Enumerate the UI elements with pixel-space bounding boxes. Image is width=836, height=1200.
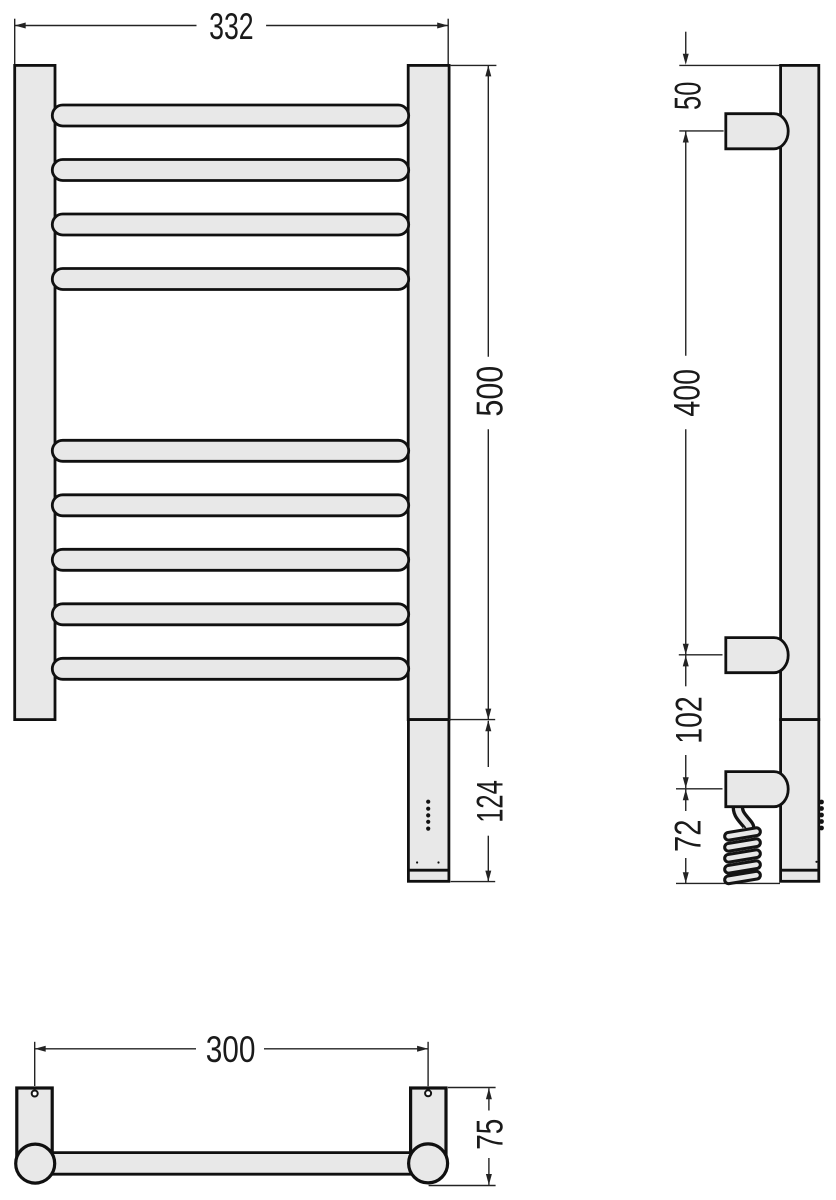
svg-text:332: 332 — [209, 6, 254, 47]
svg-text:50: 50 — [668, 82, 709, 110]
svg-text:400: 400 — [667, 369, 708, 417]
svg-text:300: 300 — [206, 1029, 256, 1070]
svg-text:72: 72 — [667, 820, 708, 853]
svg-text:124: 124 — [470, 780, 511, 823]
svg-text:75: 75 — [469, 1119, 510, 1150]
svg-text:500: 500 — [470, 366, 511, 417]
svg-text:102: 102 — [668, 696, 709, 744]
